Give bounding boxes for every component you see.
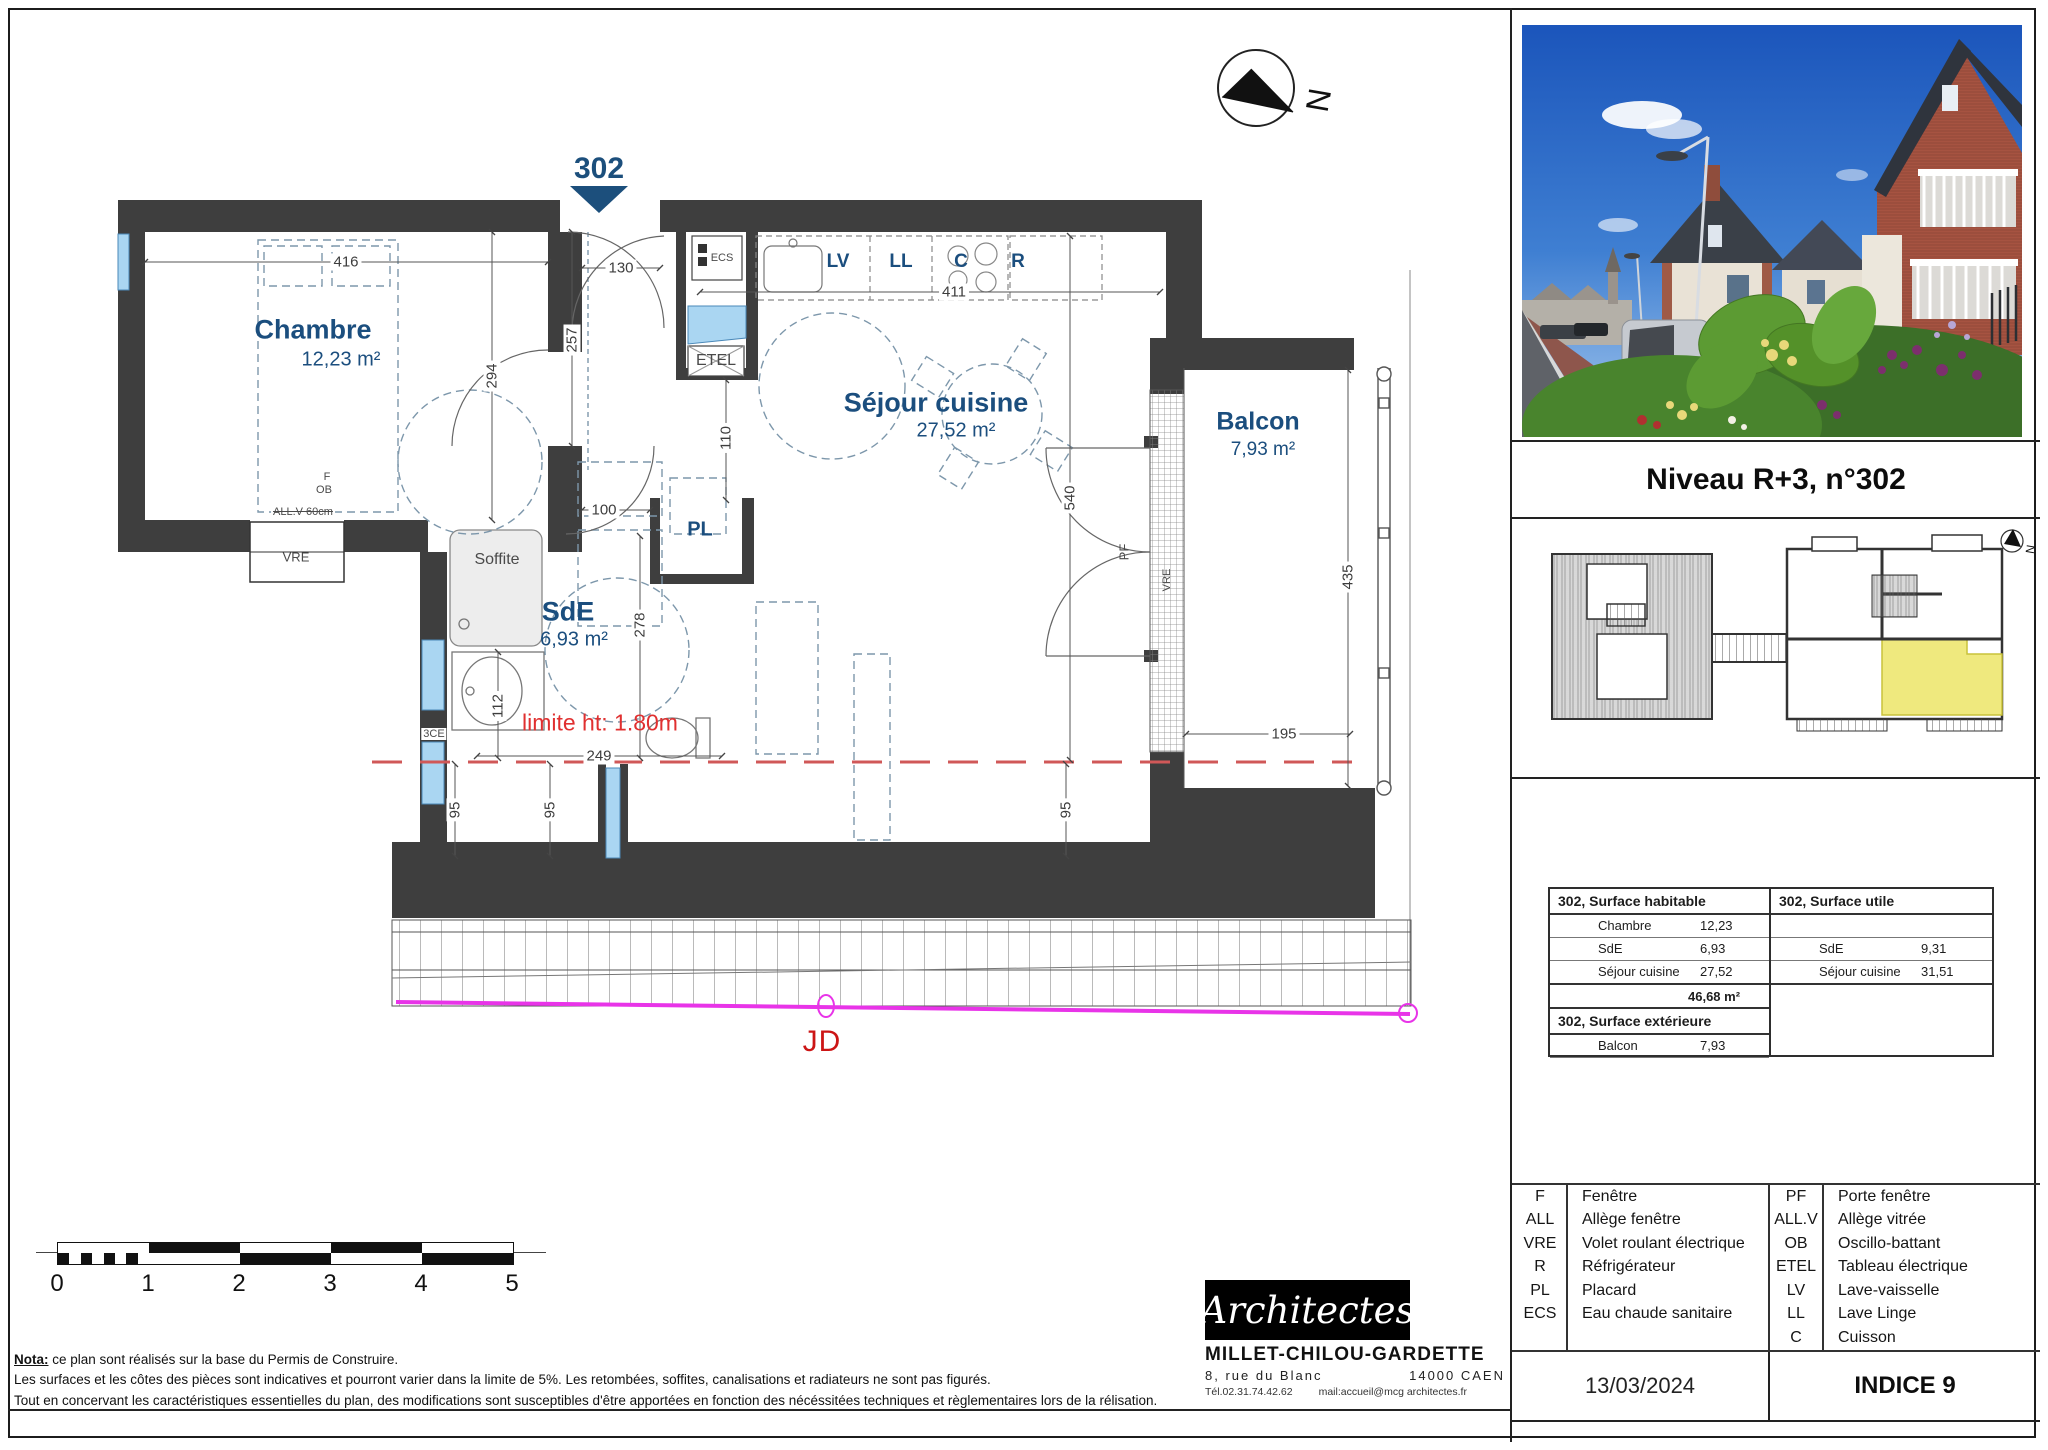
room-label-area: 12,23 m² xyxy=(302,349,381,372)
architect-street: 8, rue du Blanc xyxy=(1205,1368,1322,1383)
legend-label: Tableau électrique xyxy=(1822,1258,1968,1276)
keyplan-north-letter: N xyxy=(2023,544,2038,555)
scale-check xyxy=(69,1253,80,1264)
legend-label: Volet roulant électrique xyxy=(1566,1235,1745,1253)
legend-label: Fenêtre xyxy=(1566,1188,1637,1206)
scale-segment xyxy=(331,1243,422,1253)
dimension-label: 110 xyxy=(718,423,735,453)
scale-segment xyxy=(149,1253,240,1264)
plan-label-ecs: ECS xyxy=(711,252,734,264)
scale-check xyxy=(115,1253,126,1264)
surface-table-title: 302, Surface extérieure xyxy=(1550,1009,1769,1035)
dimension-label: 294 xyxy=(484,360,501,391)
surface-row: SdE9,31 xyxy=(1771,938,1992,961)
scale-check xyxy=(92,1253,103,1264)
legend-label: Placard xyxy=(1566,1282,1636,1300)
plan-label-pl: PL xyxy=(687,519,713,542)
nota-label: Nota: xyxy=(14,1352,49,1367)
sheet-title: Niveau R+3, n°302 xyxy=(1512,440,2040,519)
legend-abbr: F xyxy=(1514,1188,1566,1206)
legend-abbr: PL xyxy=(1514,1282,1566,1300)
surface-row-name: Chambre xyxy=(1598,918,1651,933)
surface-row: Séjour cuisine27,52 xyxy=(1550,961,1769,985)
legend-row: FFenêtre xyxy=(1514,1185,1768,1209)
legend-divider xyxy=(1566,1185,1568,1350)
legend-label: Oscillo-battant xyxy=(1822,1235,1940,1253)
legend-abbr: OB xyxy=(1770,1235,1822,1253)
plan-label-vre: VRE xyxy=(283,550,310,565)
architect-logo: Architectes xyxy=(1205,1280,1410,1340)
dimension-label: 435 xyxy=(1340,561,1357,592)
surface-row-value: 12,23 xyxy=(1700,918,1733,933)
legend-row: ALLAllège fenêtre xyxy=(1514,1209,1768,1233)
dimension-label: 95 xyxy=(1058,799,1075,822)
dimension-label: 540 xyxy=(1062,482,1079,513)
legend-label: Porte fenêtre xyxy=(1822,1188,1931,1206)
legend-row: ETELTableau électrique xyxy=(1770,1256,2038,1280)
jd-joint-label: JD xyxy=(803,1025,842,1059)
dimension-label: 100 xyxy=(588,502,619,519)
legend-row: ECSEau chaude sanitaire xyxy=(1514,1303,1768,1327)
legend-abbr: PF xyxy=(1770,1188,1822,1206)
surface-row-name: SdE xyxy=(1598,941,1623,956)
plan-labels: 302 N limite ht: 1.80m JD 41613029425711… xyxy=(0,0,1510,1450)
scale-segment xyxy=(422,1253,513,1264)
floor-plan-sheet: 302 N limite ht: 1.80m JD 41613029425711… xyxy=(0,0,2048,1450)
scale-segment xyxy=(240,1243,331,1253)
scale-segment xyxy=(240,1253,331,1264)
height-limit-label: limite ht: 1.80m xyxy=(522,710,678,737)
legend-abbr: ALL xyxy=(1514,1211,1566,1229)
legend-abbr: LV xyxy=(1770,1282,1822,1300)
site-photo xyxy=(1522,25,2022,437)
plan-label-all-v-60cm: ALL.V 60cm xyxy=(271,506,335,518)
legend-label: Eau chaude sanitaire xyxy=(1566,1305,1732,1323)
surface-row-value: 6,93 xyxy=(1700,941,1725,956)
scale-bar-segments xyxy=(57,1242,514,1265)
nota-line-3: Tout en concervant les caractéristiques … xyxy=(14,1391,1194,1411)
scale-check xyxy=(126,1253,137,1264)
surface-row xyxy=(1771,915,1992,938)
nota-line-2: Les surfaces et les côtes des pièces son… xyxy=(14,1370,1194,1390)
plan-label-soffite: Soffite xyxy=(474,551,519,569)
surface-row-name: Balcon xyxy=(1598,1038,1638,1053)
legend-row: PLPlacard xyxy=(1514,1279,1768,1303)
surface-table-utile: 302, Surface utileSdE9,31Séjour cuisine3… xyxy=(1769,889,1992,1055)
surface-row: Chambre12,23 xyxy=(1550,915,1769,938)
surface-table-title: 302, Surface utile xyxy=(1771,889,1992,915)
legend-row: OBOscillo-battant xyxy=(1770,1232,2038,1256)
room-label-area: 27,52 m² xyxy=(917,420,996,443)
surface-tables: 302, Surface habitableChambre12,23SdE6,9… xyxy=(1548,887,1994,1057)
architect-city: 14000 CAEN xyxy=(1409,1368,1505,1383)
scale-number: 3 xyxy=(323,1270,336,1298)
architect-block: Architectes MILLET-CHILOU-GARDETTE 8, ru… xyxy=(1205,1280,1517,1398)
legend-abbr: R xyxy=(1514,1258,1566,1276)
plan-label-vre: VRE xyxy=(1161,569,1173,592)
scale-segment xyxy=(422,1243,513,1253)
legend-row xyxy=(1514,1326,1768,1350)
plan-label-f: F xyxy=(324,471,331,483)
legend-label: Lave Linge xyxy=(1822,1305,1916,1323)
scale-number: 0 xyxy=(50,1270,63,1298)
dimension-label: 416 xyxy=(330,254,361,271)
legend-label: Lave-vaisselle xyxy=(1822,1282,1939,1300)
scale-number: 4 xyxy=(414,1270,427,1298)
legend-abbr: ALL.V xyxy=(1770,1211,1822,1229)
keyplan-north-icon: N xyxy=(2001,529,2038,555)
dimension-label: 411 xyxy=(939,284,969,301)
sheet-indice: INDICE 9 xyxy=(1768,1352,2040,1420)
surface-row: SdE6,93 xyxy=(1550,938,1769,961)
surface-row-name: SdE xyxy=(1819,941,1844,956)
legend-row: RRéfrigérateur xyxy=(1514,1256,1768,1280)
dimension-label: 112 xyxy=(490,691,507,721)
legend-row: ALL.VAllège vitrée xyxy=(1770,1209,2038,1233)
room-label-name: Chambre xyxy=(254,315,371,346)
room-label-name: Balcon xyxy=(1216,408,1299,437)
legend-abbr: ETEL xyxy=(1770,1258,1822,1276)
dimension-label: 195 xyxy=(1268,726,1299,743)
scale-segment xyxy=(58,1243,149,1253)
dimension-label: 95 xyxy=(447,799,464,822)
plan-label-ob: OB xyxy=(316,484,332,496)
room-label-name: Séjour cuisine xyxy=(844,388,1029,419)
room-label-area: 7,93 m² xyxy=(1231,439,1295,461)
surface-total: 46,68 m² xyxy=(1550,985,1769,1009)
legend-table: FFenêtreALLAllège fenêtreVREVolet roulan… xyxy=(1512,1183,2040,1352)
legend-row: LVLave-vaisselle xyxy=(1770,1279,2038,1303)
legend-column-right: PFPorte fenêtreALL.VAllège vitréeOBOscil… xyxy=(1768,1185,2038,1350)
scale-check xyxy=(138,1253,149,1264)
legend-row: CCuisson xyxy=(1770,1326,2038,1350)
surface-row-value: 7,93 xyxy=(1700,1038,1725,1053)
nota-block: Nota: ce plan sont réalisés sur la base … xyxy=(14,1350,1194,1411)
surface-row-value: 31,51 xyxy=(1921,964,1954,979)
legend-label: Cuisson xyxy=(1822,1329,1896,1347)
surface-table-habitable: 302, Surface habitableChambre12,23SdE6,9… xyxy=(1550,889,1769,1055)
dimension-label: 130 xyxy=(605,260,636,277)
scale-number: 1 xyxy=(141,1270,154,1298)
plan-label-etel: ETEL xyxy=(696,352,736,370)
scale-segment xyxy=(331,1253,422,1264)
dimension-label: 257 xyxy=(564,324,581,355)
plan-label-lv: LV xyxy=(827,251,850,273)
architect-name: MILLET-CHILOU-GARDETTE xyxy=(1205,1344,1517,1366)
surface-table-title: 302, Surface habitable xyxy=(1550,889,1769,915)
surface-row: Séjour cuisine31,51 xyxy=(1771,961,1992,985)
scale-segment xyxy=(149,1243,240,1253)
architect-address: 8, rue du Blanc 14000 CAEN xyxy=(1205,1368,1505,1383)
surface-row: Balcon7,93 xyxy=(1550,1035,1769,1058)
legend-row: VREVolet roulant électrique xyxy=(1514,1232,1768,1256)
legend-column-left: FFenêtreALLAllège fenêtreVREVolet roulan… xyxy=(1514,1185,1768,1350)
nota-text-1: ce plan sont réalisés sur la base du Per… xyxy=(52,1352,398,1367)
dimension-label: 278 xyxy=(632,609,649,640)
plan-label-ll: LL xyxy=(889,251,912,273)
plan-label-c: C xyxy=(954,251,968,273)
north-letter: N xyxy=(1298,85,1338,114)
surface-row-value: 9,31 xyxy=(1921,941,1946,956)
key-plan: N xyxy=(1512,519,2040,779)
surface-row-value: 27,52 xyxy=(1700,964,1733,979)
legend-row: PFPorte fenêtre xyxy=(1770,1185,2038,1209)
titleblock-footer: 13/03/2024 INDICE 9 xyxy=(1512,1352,2040,1422)
plan-label-r: R xyxy=(1011,251,1025,273)
surface-row-name: Séjour cuisine xyxy=(1819,964,1901,979)
room-label-name: SdE xyxy=(542,597,595,628)
room-label-area: 6,93 m² xyxy=(540,629,608,652)
dimension-label: 95 xyxy=(542,799,559,822)
bottom-rule xyxy=(8,1409,1512,1411)
scale-check xyxy=(104,1253,115,1264)
legend-abbr: VRE xyxy=(1514,1235,1566,1253)
scale-check xyxy=(81,1253,92,1264)
legend-label: Allège fenêtre xyxy=(1566,1211,1681,1229)
scale-number: 5 xyxy=(505,1270,518,1298)
scale-number: 2 xyxy=(232,1270,245,1298)
legend-abbr: C xyxy=(1770,1329,1822,1347)
scale-bar: 012345 xyxy=(36,1236,556,1306)
legend-label: Allège vitrée xyxy=(1822,1211,1926,1229)
nota-line-1: Nota: ce plan sont réalisés sur la base … xyxy=(14,1350,1194,1370)
legend-row: LLLave Linge xyxy=(1770,1303,2038,1327)
surface-row-name: Séjour cuisine xyxy=(1598,964,1680,979)
plan-label-pf: PF xyxy=(1117,544,1132,561)
sheet-date: 13/03/2024 xyxy=(1512,1352,1768,1420)
legend-label: Réfrigérateur xyxy=(1566,1258,1675,1276)
apartment-number-marker: 302 xyxy=(574,152,624,186)
plan-label-3ce: 3CE xyxy=(421,728,446,740)
legend-divider xyxy=(1822,1185,1824,1350)
architect-mail: mail:accueil@mcg architectes.fr xyxy=(1319,1386,1467,1398)
architect-phone: Tél.02.31.74.42.62 xyxy=(1205,1386,1293,1398)
architect-contact: Tél.02.31.74.42.62 mail:accueil@mcg arch… xyxy=(1205,1386,1517,1398)
legend-abbr: LL xyxy=(1770,1305,1822,1323)
dimension-label: 249 xyxy=(583,748,614,765)
scale-check xyxy=(58,1253,69,1264)
legend-abbr: ECS xyxy=(1514,1305,1566,1323)
